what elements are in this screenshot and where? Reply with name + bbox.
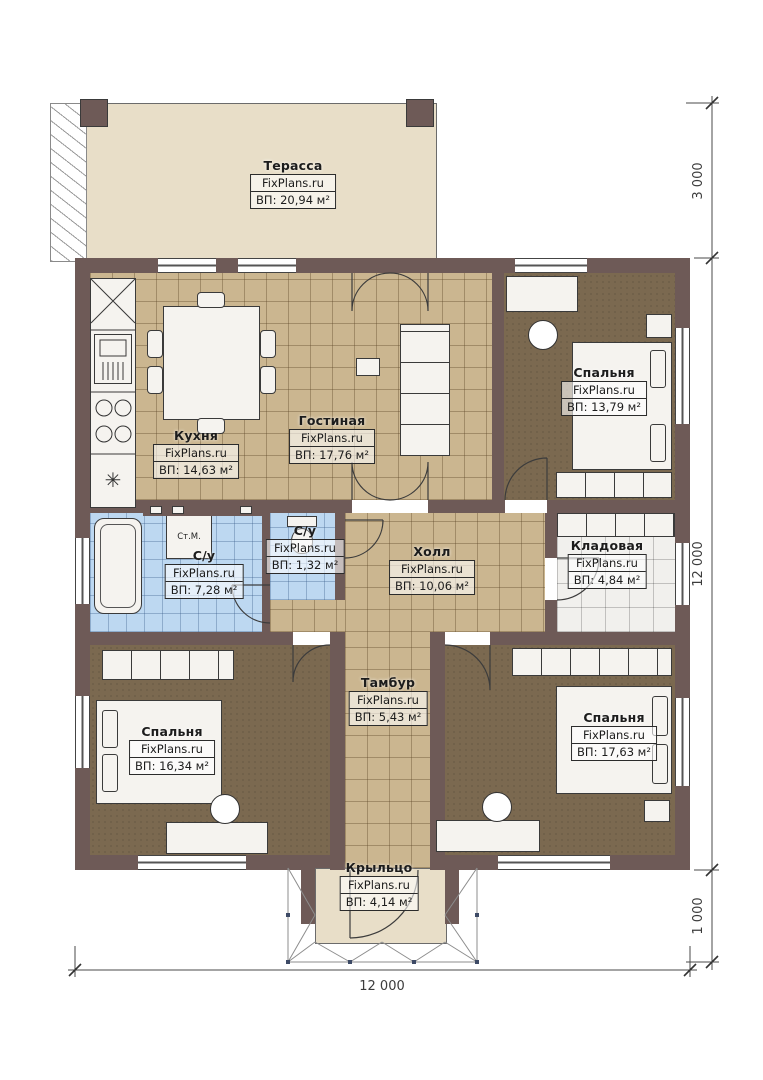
office-chair bbox=[210, 794, 240, 824]
wall-mid-top bbox=[547, 500, 675, 513]
room-label-bathroom: С/у FixPlans.ru ВП: 7,28 м² bbox=[165, 548, 244, 599]
room-name: Кухня bbox=[153, 428, 239, 443]
room-label-terrace: Терасса FixPlans.ru ВП: 20,94 м² bbox=[250, 158, 336, 209]
wall-tambour-left bbox=[330, 632, 345, 870]
cabinet-inset bbox=[172, 506, 184, 514]
room-name: Терасса bbox=[250, 158, 336, 173]
pillow bbox=[102, 710, 118, 748]
wall-hall-storage bbox=[545, 600, 557, 632]
room-brand: FixPlans.ru bbox=[290, 430, 374, 446]
cabinet-inset bbox=[150, 506, 162, 514]
room-area: ВП: 4,14 м² bbox=[341, 893, 418, 910]
room-area: ВП: 10,06 м² bbox=[390, 577, 474, 594]
room-area: ВП: 13,79 м² bbox=[562, 398, 646, 415]
room-name: Спальня bbox=[561, 365, 647, 380]
wardrobe bbox=[102, 650, 234, 680]
room-name: Холл bbox=[389, 544, 475, 559]
wall-mid-bottom bbox=[90, 632, 293, 645]
dimension-line-bottom bbox=[68, 946, 697, 977]
pillow bbox=[650, 424, 666, 462]
room-brand: FixPlans.ru bbox=[166, 565, 243, 581]
window bbox=[158, 258, 216, 273]
room-area: ВП: 1,32 м² bbox=[267, 556, 344, 573]
fridge bbox=[94, 334, 132, 384]
window bbox=[75, 696, 90, 768]
window bbox=[138, 855, 246, 870]
desk bbox=[506, 276, 578, 312]
sink-cabinet: ✳ bbox=[94, 456, 132, 504]
window bbox=[498, 855, 610, 870]
room-brand: FixPlans.ru bbox=[569, 555, 646, 571]
room-label-bedroom-ne: Спальня FixPlans.ru ВП: 13,79 м² bbox=[561, 365, 647, 416]
room-name: Спальня bbox=[571, 710, 657, 725]
room-brand: FixPlans.ru bbox=[390, 561, 474, 577]
desk bbox=[166, 822, 268, 854]
room-area: ВП: 20,94 м² bbox=[251, 191, 335, 208]
floor-plan: ✳ Ст.М. bbox=[0, 0, 763, 1080]
room-name: Кладовая bbox=[568, 538, 647, 553]
dim-house-width: 12 000 bbox=[359, 979, 405, 994]
room-area: ВП: 17,76 м² bbox=[290, 446, 374, 463]
window bbox=[515, 258, 587, 273]
room-label-porch: Крыльцо FixPlans.ru ВП: 4,14 м² bbox=[340, 860, 419, 911]
wall-mid-top bbox=[428, 500, 505, 513]
wardrobe bbox=[556, 472, 672, 498]
room-brand: FixPlans.ru bbox=[130, 741, 214, 757]
desk bbox=[436, 820, 540, 852]
dining-table bbox=[163, 306, 260, 420]
dimension-line-right bbox=[686, 96, 719, 970]
room-brand: FixPlans.ru bbox=[572, 727, 656, 743]
room-label-kitchen: Кухня FixPlans.ru ВП: 14,63 м² bbox=[153, 428, 239, 479]
room-area: ВП: 17,63 м² bbox=[572, 743, 656, 760]
porch-wall bbox=[301, 868, 315, 924]
window bbox=[675, 328, 690, 424]
room-name: С/у bbox=[165, 548, 244, 563]
room-brand: FixPlans.ru bbox=[350, 692, 427, 708]
room-name: С/у bbox=[266, 523, 345, 538]
room-brand: FixPlans.ru bbox=[562, 382, 646, 398]
window bbox=[75, 538, 90, 604]
room-area: ВП: 7,28 м² bbox=[166, 581, 243, 598]
wall-hall-storage bbox=[545, 513, 557, 558]
window bbox=[675, 543, 690, 605]
chair bbox=[260, 330, 276, 358]
coffee-table bbox=[356, 358, 380, 376]
chair bbox=[147, 366, 163, 394]
room-name: Тамбур bbox=[349, 675, 428, 690]
dim-house-height: 12 000 bbox=[691, 541, 706, 587]
room-label-bedroom-sw: Спальня FixPlans.ru ВП: 16,34 м² bbox=[129, 724, 215, 775]
room-brand: FixPlans.ru bbox=[341, 877, 418, 893]
room-name: Спальня bbox=[129, 724, 215, 739]
nightstand bbox=[644, 800, 670, 822]
chair bbox=[147, 330, 163, 358]
room-brand: FixPlans.ru bbox=[267, 540, 344, 556]
storage-shelves bbox=[557, 513, 675, 537]
room-area: ВП: 16,34 м² bbox=[130, 757, 214, 774]
chair bbox=[260, 366, 276, 394]
office-chair bbox=[482, 792, 512, 822]
room-name: Гостиная bbox=[289, 413, 375, 428]
porch-wall bbox=[445, 868, 459, 924]
office-chair bbox=[528, 320, 558, 350]
window bbox=[675, 698, 690, 786]
dimension-tick bbox=[706, 97, 718, 968]
room-label-tambour: Тамбур FixPlans.ru ВП: 5,43 м² bbox=[349, 675, 428, 726]
dim-terrace-depth: 3 000 bbox=[691, 162, 706, 199]
room-label-bedroom-se: Спальня FixPlans.ru ВП: 17,63 м² bbox=[571, 710, 657, 761]
room-area: ВП: 14,63 м² bbox=[154, 461, 238, 478]
dimension-tick bbox=[69, 964, 696, 976]
terrace-pillar bbox=[406, 99, 434, 127]
tambour-floor bbox=[345, 632, 430, 868]
wall-mid-bottom bbox=[490, 632, 675, 645]
room-label-hall: Холл FixPlans.ru ВП: 10,06 м² bbox=[389, 544, 475, 595]
room-area: ВП: 4,84 м² bbox=[569, 571, 646, 588]
chair bbox=[197, 292, 225, 308]
nightstand bbox=[646, 314, 672, 338]
wall-living-bedroom bbox=[492, 273, 504, 500]
room-name: Крыльцо bbox=[340, 860, 419, 875]
room-brand: FixPlans.ru bbox=[154, 445, 238, 461]
room-area: ВП: 5,43 м² bbox=[350, 708, 427, 725]
terrace-pillar bbox=[80, 99, 108, 127]
room-label-wc-small: С/у FixPlans.ru ВП: 1,32 м² bbox=[266, 523, 345, 574]
bathtub-inner bbox=[100, 524, 136, 608]
tv-unit bbox=[400, 324, 450, 456]
room-label-living: Гостиная FixPlans.ru ВП: 17,76 м² bbox=[289, 413, 375, 464]
pillow bbox=[102, 754, 118, 792]
pillow bbox=[650, 350, 666, 388]
room-label-storage: Кладовая FixPlans.ru ВП: 4,84 м² bbox=[568, 538, 647, 589]
window bbox=[238, 258, 296, 273]
wardrobe bbox=[512, 648, 672, 676]
room-brand: FixPlans.ru bbox=[251, 175, 335, 191]
dim-porch-depth: 1 000 bbox=[691, 897, 706, 934]
cabinet-inset bbox=[240, 506, 252, 514]
corridor-floor bbox=[270, 600, 345, 632]
